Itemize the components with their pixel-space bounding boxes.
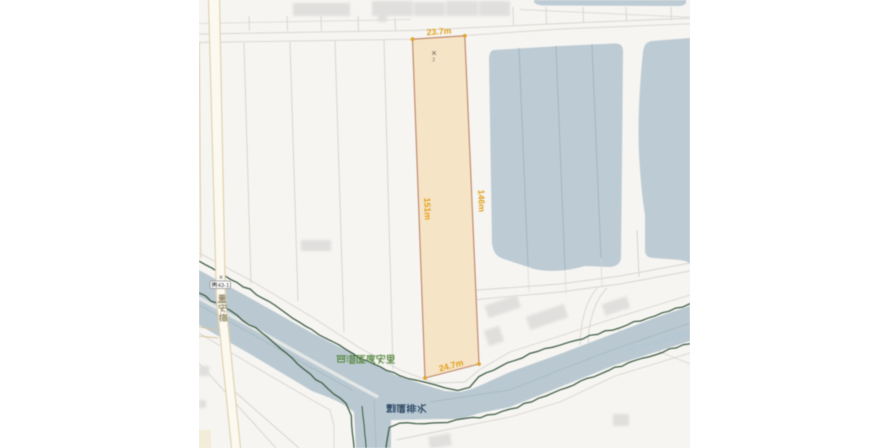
svg-text:3: 3 bbox=[432, 58, 435, 64]
svg-text:23.7m: 23.7m bbox=[426, 26, 452, 38]
svg-text:151m: 151m bbox=[422, 197, 433, 220]
svg-text:43-1: 43-1 bbox=[218, 283, 230, 289]
svg-text:146m: 146m bbox=[476, 189, 487, 212]
